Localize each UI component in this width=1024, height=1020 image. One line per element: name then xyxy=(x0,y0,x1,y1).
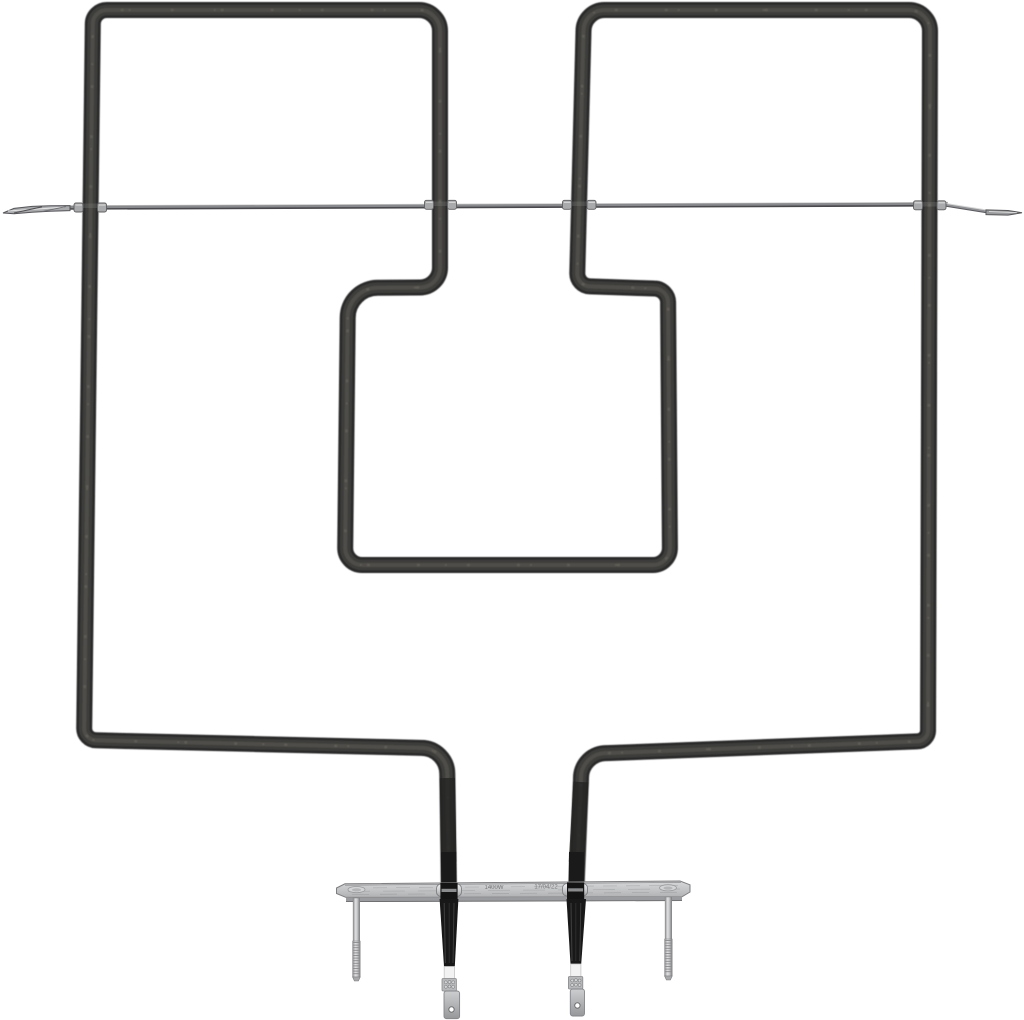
svg-text:17/04/22: 17/04/22 xyxy=(534,885,558,891)
svg-text:1400W: 1400W xyxy=(484,885,503,891)
